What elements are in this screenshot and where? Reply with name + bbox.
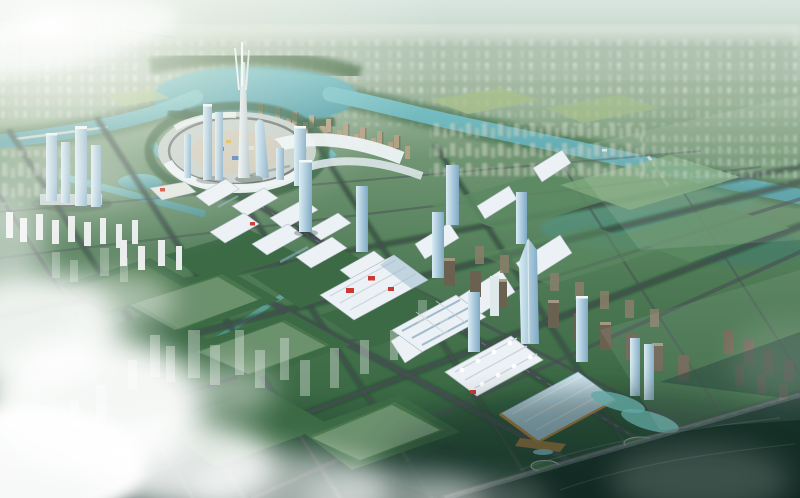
- rendering-canvas: [0, 0, 800, 498]
- aerial-rendering: [0, 0, 800, 498]
